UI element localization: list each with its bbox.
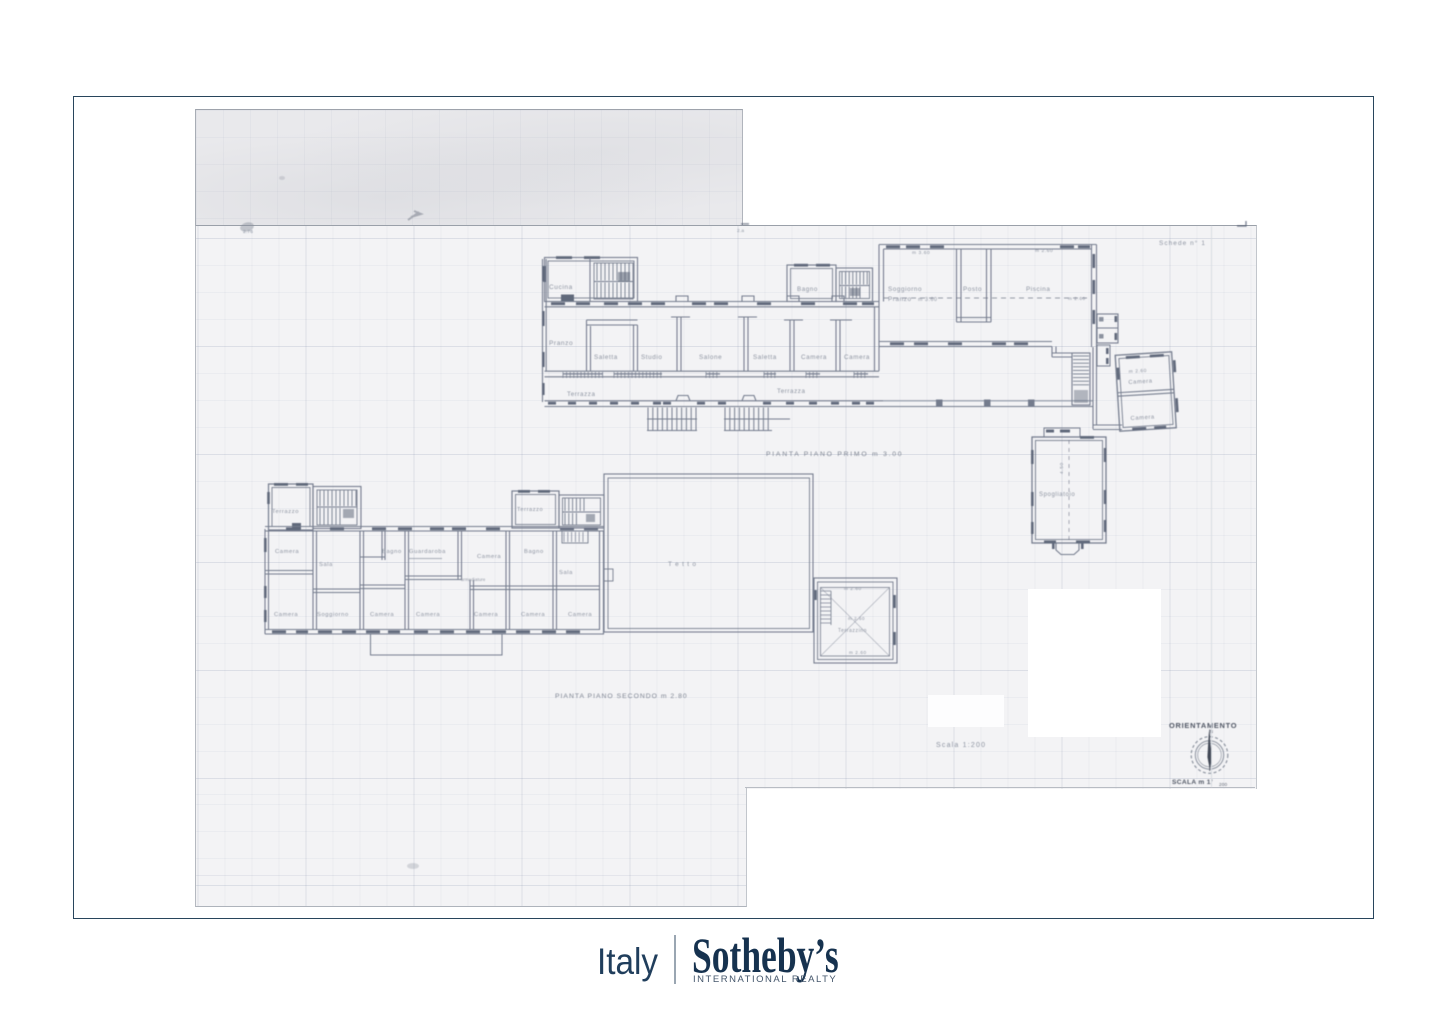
svg-text:m 2.60: m 2.60 bbox=[844, 586, 862, 591]
svg-text:Sala: Sala bbox=[559, 570, 573, 576]
svg-text:Pranzo: Pranzo bbox=[549, 340, 573, 347]
svg-text:200: 200 bbox=[1219, 782, 1228, 787]
svg-text:Piscina: Piscina bbox=[1026, 286, 1051, 293]
svg-text:T e t t o: T e t t o bbox=[668, 561, 697, 568]
svg-text:m 2.60: m 2.60 bbox=[849, 650, 867, 655]
svg-text:m 2.60: m 2.60 bbox=[1068, 296, 1086, 301]
svg-text:Camera: Camera bbox=[474, 612, 498, 618]
svg-text:PIANTA PIANO SECONDO m 2.: PIANTA PIANO SECONDO m 2.80 bbox=[555, 693, 688, 700]
svg-text:Cucina: Cucina bbox=[549, 284, 573, 291]
svg-text:Camera: Camera bbox=[274, 612, 298, 618]
svg-text:PIANTA PIANO PRIMO m 3.00: PIANTA PIANO PRIMO m 3.00 bbox=[766, 451, 903, 458]
svg-text:Saletta: Saletta bbox=[594, 354, 618, 361]
svg-text:Spogliatoio: Spogliatoio bbox=[1039, 492, 1075, 498]
svg-text:Camera: Camera bbox=[416, 612, 440, 618]
svg-text:Camera: Camera bbox=[1130, 415, 1155, 422]
svg-text:SCALA m 1/: SCALA m 1/ bbox=[1172, 779, 1213, 786]
svg-text:m 2.60: m 2.60 bbox=[1035, 248, 1053, 254]
svg-text:Guardaroba: Guardaroba bbox=[409, 549, 446, 555]
svg-text:2.a: 2.a bbox=[737, 228, 744, 234]
svg-text:Terrazza: Terrazza bbox=[567, 391, 596, 398]
svg-text:Terrazzino: Terrazzino bbox=[838, 628, 867, 634]
svg-text:Camera: Camera bbox=[477, 554, 501, 560]
svg-text:Studio: Studio bbox=[641, 354, 662, 361]
svg-text:Terrazzo: Terrazzo bbox=[517, 507, 543, 513]
svg-text:Camera: Camera bbox=[521, 612, 545, 618]
svg-text:m 3.60: m 3.60 bbox=[918, 297, 937, 303]
svg-text:Scala 1:200: Scala 1:200 bbox=[936, 742, 986, 749]
svg-text:m 2.60: m 2.60 bbox=[1129, 368, 1148, 375]
svg-text:4.50: 4.50 bbox=[1059, 462, 1065, 474]
svg-text:Saletta: Saletta bbox=[753, 354, 777, 361]
svg-text:m 3.60: m 3.60 bbox=[912, 250, 930, 256]
svg-text:Posto: Posto bbox=[963, 286, 982, 293]
svg-text:Bagno: Bagno bbox=[797, 286, 818, 293]
svg-text:ORIENTAMENTO: ORIENTAMENTO bbox=[1169, 721, 1237, 730]
svg-text:Bagno: Bagno bbox=[382, 549, 402, 555]
svg-text:Camera: Camera bbox=[275, 549, 299, 555]
svg-text:Soggiorno: Soggiorno bbox=[888, 286, 922, 293]
svg-text:Schede n° 1: Schede n° 1 bbox=[1159, 239, 1206, 247]
svg-text:Camera: Camera bbox=[568, 612, 592, 618]
svg-text:Soggiorno: Soggiorno bbox=[317, 612, 349, 618]
svg-text:Camera: Camera bbox=[801, 354, 827, 361]
svg-text:armadiature: armadiature bbox=[461, 577, 486, 582]
svg-text:Camera: Camera bbox=[1128, 379, 1153, 386]
svg-text:Salone: Salone bbox=[699, 354, 722, 361]
svg-text:Sala: Sala bbox=[319, 562, 333, 568]
svg-text:Camera: Camera bbox=[370, 612, 394, 618]
svg-text:Terrazza: Terrazza bbox=[777, 388, 806, 395]
svg-text:Terrazzo: Terrazzo bbox=[272, 509, 299, 515]
svg-text:Bagno: Bagno bbox=[524, 549, 544, 555]
svg-text:m 2.60: m 2.60 bbox=[848, 616, 865, 621]
svg-text:Camera: Camera bbox=[844, 354, 870, 361]
svg-text:Pranzo: Pranzo bbox=[888, 296, 912, 303]
